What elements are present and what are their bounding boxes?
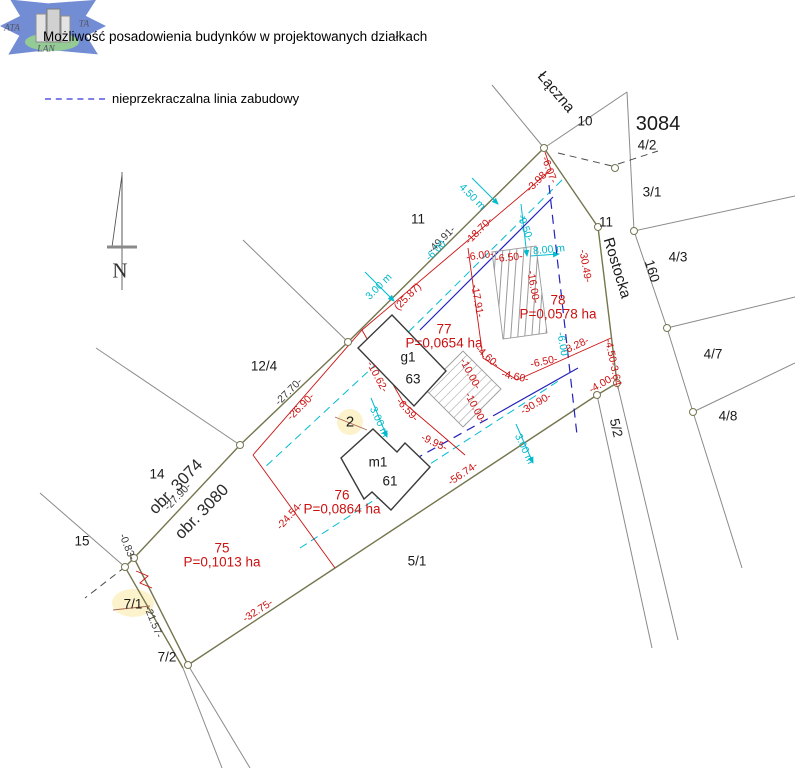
proposed-building-plot-78 (492, 246, 547, 339)
legend-label: nieprzekraczalna linia zabudowy (112, 91, 299, 106)
design-subdivision-lines (113, 152, 611, 610)
map-drawing (0, 0, 795, 768)
north-arrow-icon (107, 172, 137, 290)
highlight-plot-7-1 (112, 589, 154, 617)
building-limit-lines (388, 185, 578, 474)
boundary-point-markers (122, 145, 697, 669)
highlight-plot-2 (337, 409, 363, 435)
cadastral-map-page: ŁącznaRostocka1030844/23/1111604/34/74/8… (0, 0, 795, 768)
legend-dashed-line-icon (45, 98, 105, 100)
neighbor-parcel-lines (40, 85, 795, 768)
dashed-boundary-lines (85, 151, 658, 598)
existing-building-m1-61 (341, 429, 430, 510)
continuation-zigzag-icon (136, 571, 152, 588)
page-title: Możliwość posadowienia budynków w projek… (43, 29, 427, 44)
site-boundary-lines (125, 148, 617, 668)
